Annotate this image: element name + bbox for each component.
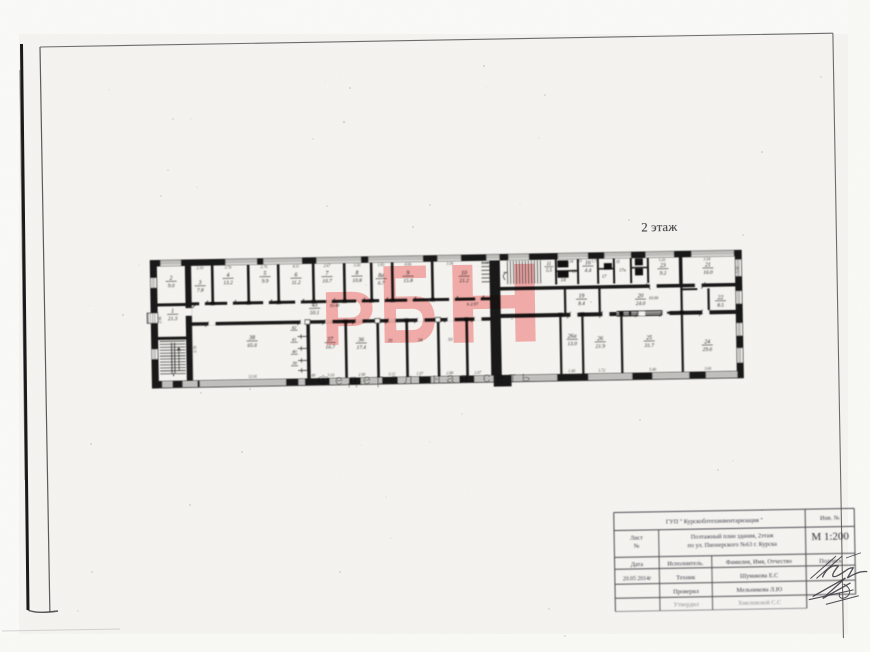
svg-text:2.67: 2.67 <box>323 264 331 268</box>
svg-text:10.7: 10.7 <box>322 278 332 284</box>
svg-text:14: 14 <box>561 278 567 283</box>
svg-text:13: 13 <box>578 259 582 263</box>
svg-text:12.01: 12.01 <box>248 375 257 379</box>
svg-text:25: 25 <box>646 335 652 341</box>
svg-text:5.04: 5.04 <box>481 261 488 265</box>
svg-text:16.0: 16.0 <box>703 270 713 276</box>
svg-text:5.46: 5.46 <box>649 368 656 372</box>
svg-text:2: 2 <box>170 276 173 282</box>
svg-text:по ул. Пионерского №63 г. Кур: по ул. Пионерского №63 г. Курска <box>688 541 778 550</box>
svg-text:38: 38 <box>248 335 255 341</box>
svg-text:3: 3 <box>198 280 202 286</box>
svg-text:3.54: 3.54 <box>703 258 710 262</box>
svg-text:3.76: 3.76 <box>224 266 231 270</box>
svg-text:17а: 17а <box>619 267 626 272</box>
svg-text:Поэтажный план здания, 2этаж: Поэтажный план здания, 2этаж <box>691 532 775 540</box>
svg-text:37: 37 <box>326 337 334 343</box>
svg-text:16.7: 16.7 <box>326 344 336 350</box>
svg-text:3.36: 3.36 <box>446 262 453 266</box>
svg-text:10.8: 10.8 <box>352 278 362 284</box>
svg-text:15: 15 <box>616 260 620 264</box>
svg-text:Инв. №: Инв. № <box>820 515 840 522</box>
svg-text:6.7: 6.7 <box>378 280 385 286</box>
svg-text:9.9: 9.9 <box>262 278 269 284</box>
svg-text:9.2: 9.2 <box>660 270 667 276</box>
svg-text:34: 34 <box>418 337 423 342</box>
svg-text:9: 9 <box>407 271 410 277</box>
svg-text:26: 26 <box>597 336 603 342</box>
svg-text:5.76: 5.76 <box>193 346 197 353</box>
svg-text:11: 11 <box>546 261 551 267</box>
svg-text:21.3: 21.3 <box>168 316 178 322</box>
svg-text:1.40: 1.40 <box>568 369 575 373</box>
svg-text:42: 42 <box>292 325 297 330</box>
svg-text:39: 39 <box>292 361 297 366</box>
svg-text:17.4: 17.4 <box>357 345 367 351</box>
svg-text:5.5: 5.5 <box>546 269 553 274</box>
svg-text:1.34: 1.34 <box>566 260 573 264</box>
svg-text:8.4: 8.4 <box>578 301 585 307</box>
svg-text:19: 19 <box>578 294 584 300</box>
svg-text:3.36: 3.36 <box>736 266 740 273</box>
svg-text:h 2.97: h 2.97 <box>467 301 479 306</box>
svg-text:Утвердил: Утвердил <box>674 601 699 608</box>
svg-text:2.48: 2.48 <box>308 374 315 378</box>
svg-text:21: 21 <box>705 262 711 268</box>
svg-text:Хмелевской С.С: Хмелевской С.С <box>738 599 781 607</box>
svg-text:13.0: 13.0 <box>567 341 577 347</box>
svg-text:Фамилия, Имя, Отчество: Фамилия, Имя, Отчество <box>726 558 792 566</box>
svg-text:22: 22 <box>718 295 724 301</box>
svg-text:29.6: 29.6 <box>703 347 713 353</box>
svg-text:4.66: 4.66 <box>404 263 411 267</box>
svg-text:8: 8 <box>355 270 358 276</box>
svg-text:65.6: 65.6 <box>247 343 257 349</box>
svg-text:1.72: 1.72 <box>598 369 605 373</box>
svg-text:4.4: 4.4 <box>585 268 592 274</box>
svg-text:7: 7 <box>326 271 330 277</box>
svg-text:10.00: 10.00 <box>649 295 659 300</box>
svg-text:Проверил: Проверил <box>673 588 699 595</box>
svg-text:4.11: 4.11 <box>293 265 300 269</box>
svg-text:13.2: 13.2 <box>223 280 233 286</box>
svg-text:2.76: 2.76 <box>260 265 267 269</box>
svg-text:15: 15 <box>572 269 576 274</box>
svg-text:16: 16 <box>585 260 591 266</box>
svg-text:33: 33 <box>448 337 453 342</box>
svg-text:41: 41 <box>292 337 297 342</box>
svg-text:21.9: 21.9 <box>596 344 606 350</box>
svg-text:4: 4 <box>226 272 229 279</box>
svg-text:Дата: Дата <box>631 561 644 568</box>
svg-text:М 1:200: М 1:200 <box>811 530 849 543</box>
svg-text:15.8: 15.8 <box>403 278 413 284</box>
svg-text:11.2: 11.2 <box>292 280 301 286</box>
svg-text:26а: 26а <box>568 334 577 340</box>
svg-text:Исполнитель.: Исполнитель. <box>667 560 704 568</box>
svg-text:40: 40 <box>292 349 297 354</box>
svg-text:17: 17 <box>602 274 607 279</box>
svg-text:5: 5 <box>263 271 266 277</box>
svg-text:24: 24 <box>704 338 710 345</box>
svg-text:1: 1 <box>171 309 174 315</box>
svg-text:31.7: 31.7 <box>644 343 655 349</box>
svg-text:35: 35 <box>388 338 393 343</box>
svg-text:20: 20 <box>637 294 643 300</box>
svg-text:2.10: 2.10 <box>196 266 203 270</box>
svg-text:Лист: Лист <box>630 536 643 542</box>
svg-text:10: 10 <box>461 271 467 277</box>
svg-text:Шумакова Е.С: Шумакова Е.С <box>740 572 778 580</box>
svg-text:21.2: 21.2 <box>459 278 469 284</box>
svg-text:№: № <box>634 544 640 550</box>
svg-text:1.79: 1.79 <box>591 259 598 263</box>
svg-text:2.96: 2.96 <box>158 316 162 323</box>
svg-text:24.0: 24.0 <box>636 301 646 307</box>
svg-text:36: 36 <box>357 337 364 343</box>
svg-text:20.05 2014г: 20.05 2014г <box>623 576 652 583</box>
svg-text:Техник: Техник <box>676 574 696 581</box>
svg-text:1.14: 1.14 <box>634 259 641 263</box>
svg-text:7.8: 7.8 <box>197 288 204 294</box>
svg-text:50.48: 50.48 <box>330 303 340 308</box>
svg-text:9.0: 9.0 <box>168 283 175 289</box>
svg-text:1.83: 1.83 <box>377 263 384 267</box>
svg-text:3.20: 3.20 <box>658 258 665 262</box>
svg-text:50.1: 50.1 <box>310 310 320 316</box>
svg-text:23: 23 <box>660 263 666 269</box>
svg-text:Мельникова Л.Ю: Мельникова Л.Ю <box>736 586 782 594</box>
svg-text:ГУП " Курскоблтехинвентаризаци: ГУП " Курскоблтехинвентаризация " <box>666 517 764 526</box>
svg-text:3.00: 3.00 <box>704 367 711 371</box>
svg-text:6: 6 <box>295 273 298 279</box>
svg-text:8а: 8а <box>378 273 384 279</box>
svg-text:8.5: 8.5 <box>717 302 724 308</box>
svg-text:3.30: 3.30 <box>353 264 360 268</box>
